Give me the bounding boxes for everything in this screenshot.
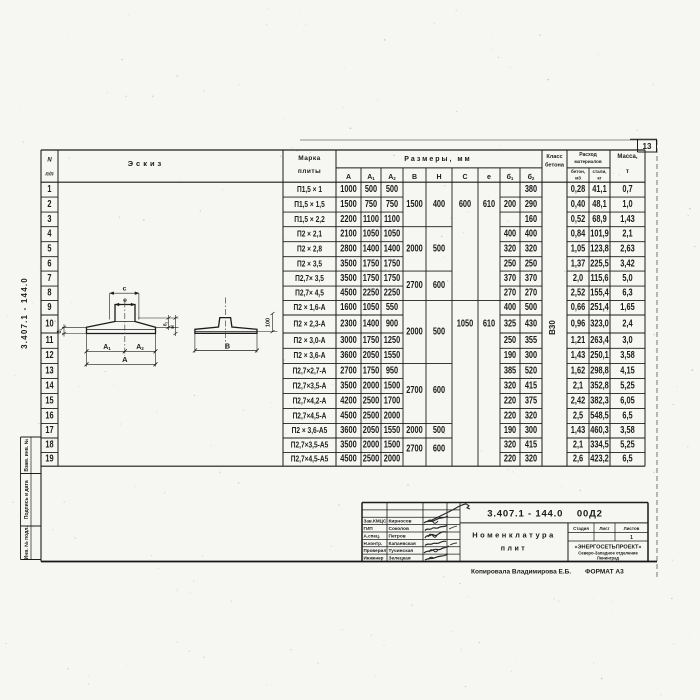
svg-text:с: с [123,286,127,293]
svg-text:1,65: 1,65 [620,301,634,312]
svg-text:1: 1 [47,183,51,194]
svg-text:3,42: 3,42 [620,257,634,268]
svg-text:А2: А2 [136,344,144,351]
svg-text:П2 × 3,0-А: П2 × 3,0-А [293,335,325,345]
svg-text:2: 2 [47,198,51,209]
svg-text:1,37: 1,37 [571,257,585,268]
svg-text:1,43: 1,43 [571,424,585,435]
svg-text:1050: 1050 [363,301,380,312]
svg-text:1: 1 [630,535,633,541]
svg-text:2000: 2000 [406,242,423,253]
svg-text:250: 250 [504,257,516,268]
svg-text:2,1: 2,1 [622,228,632,239]
svg-text:Взам. инв. №: Взам. инв. № [24,438,30,471]
svg-text:550: 550 [386,301,398,312]
svg-text:251,4: 251,4 [590,301,609,312]
svg-text:1750: 1750 [384,272,401,283]
svg-text:П2,7× 4,5: П2,7× 4,5 [295,288,324,298]
svg-text:1700: 1700 [384,394,401,405]
svg-text:3,58: 3,58 [620,349,634,360]
svg-text:т: т [626,169,629,175]
svg-text:263,4: 263,4 [590,334,609,345]
svg-text:1750: 1750 [363,257,380,268]
svg-text:375: 375 [525,394,537,405]
svg-text:3500: 3500 [340,272,357,283]
svg-text:380: 380 [525,183,537,194]
svg-text:Стадия: Стадия [573,526,589,531]
svg-text:600: 600 [433,442,445,453]
svg-text:400: 400 [525,228,537,239]
svg-text:2100: 2100 [340,228,357,239]
svg-text:415: 415 [525,379,537,390]
svg-text:В: В [225,343,230,350]
svg-text:2,1: 2,1 [573,439,583,450]
svg-text:250: 250 [525,257,537,268]
svg-text:270: 270 [504,287,516,298]
svg-text:290: 290 [525,198,537,209]
svg-text:Зелецкая: Зелецкая [389,556,411,562]
svg-text:Размеры, мм: Размеры, мм [404,156,471,163]
svg-text:бетон,: бетон, [571,168,585,174]
svg-text:325: 325 [504,317,516,328]
svg-text:4500: 4500 [340,409,357,420]
svg-text:3000: 3000 [340,334,357,345]
svg-text:0,84: 0,84 [571,228,585,239]
svg-text:п/п: п/п [45,172,54,178]
svg-text:370: 370 [525,272,537,283]
svg-text:41,1: 41,1 [592,183,606,194]
svg-text:2700: 2700 [406,384,423,395]
svg-text:2000: 2000 [406,325,423,336]
svg-text:П2 × 2,8: П2 × 2,8 [297,244,323,254]
svg-text:6,3: 6,3 [622,287,632,298]
svg-text:6,05: 6,05 [620,394,634,405]
svg-text:2700: 2700 [406,442,423,453]
svg-text:м3: м3 [575,176,581,181]
svg-text:300: 300 [525,349,537,360]
svg-text:1750: 1750 [363,364,380,375]
svg-text:2,63: 2,63 [620,243,634,254]
svg-text:2,1: 2,1 [573,379,583,390]
svg-text:5,25: 5,25 [620,439,634,450]
svg-text:Номенклатура: Номенклатура [472,531,556,540]
svg-text:П2,7×3,5-А5: П2,7×3,5-А5 [291,440,329,450]
svg-text:460,3: 460,3 [590,424,609,435]
svg-text:Проверил: Проверил [364,548,387,553]
svg-text:П2 × 1,6-А: П2 × 1,6-А [293,302,325,312]
svg-text:Листов: Листов [624,526,640,531]
svg-text:Подпись и дата: Подпись и дата [24,480,30,519]
svg-text:Капаевская: Капаевская [389,541,416,547]
svg-text:4: 4 [47,228,51,239]
svg-text:500: 500 [433,424,445,435]
svg-text:П2,7×2,7-А: П2,7×2,7-А [293,366,327,376]
svg-text:3600: 3600 [340,424,357,435]
svg-text:Расход: Расход [579,152,597,158]
svg-text:Инженер: Инженер [364,556,384,561]
svg-text:2000: 2000 [406,424,423,435]
svg-text:бетона: бетона [545,162,565,169]
svg-text:плит: плит [501,546,527,553]
svg-text:298,8: 298,8 [590,364,609,375]
svg-text:10: 10 [45,317,53,328]
svg-text:1400: 1400 [363,243,380,254]
svg-text:190: 190 [504,424,516,435]
svg-text:1100: 1100 [363,213,379,224]
svg-text:250: 250 [504,334,516,345]
svg-text:8: 8 [47,287,51,298]
svg-text:2500: 2500 [363,409,380,420]
svg-text:115,6: 115,6 [590,272,608,283]
svg-text:А: А [122,355,128,364]
svg-text:А1: А1 [103,344,111,351]
svg-text:320: 320 [525,409,537,420]
svg-text:1,43: 1,43 [571,349,585,360]
svg-text:А.спец.: А.спец. [364,533,381,538]
svg-text:2700: 2700 [406,279,423,290]
svg-text:1400: 1400 [384,243,401,254]
svg-text:П2,7×3,5-А: П2,7×3,5-А [293,381,327,391]
svg-text:Копировала Владимирова Е.Б.: Копировала Владимирова Е.Б. [471,569,571,576]
svg-text:2000: 2000 [384,409,401,420]
svg-text:3.407.1 - 144.0 00Д2: 3.407.1 - 144.0 00Д2 [487,509,603,520]
svg-text:9: 9 [47,301,51,312]
svg-text:48,1: 48,1 [592,198,606,209]
svg-text:950: 950 [386,364,398,375]
svg-text:750: 750 [386,198,398,209]
svg-text:В30: В30 [548,320,557,335]
svg-text:500: 500 [525,301,537,312]
svg-text:14: 14 [45,379,53,390]
svg-text:Соколов: Соколов [389,526,409,532]
svg-text:Н.контр.: Н.контр. [364,541,383,546]
svg-text:4500: 4500 [340,453,357,464]
svg-text:155,4: 155,4 [590,287,609,298]
svg-text:0,66: 0,66 [571,301,585,312]
svg-text:68,9: 68,9 [592,213,606,224]
svg-text:Кирносов: Кирносов [389,519,412,525]
svg-text:520: 520 [525,364,537,375]
svg-text:2000: 2000 [363,379,380,390]
svg-text:2,5: 2,5 [573,409,583,420]
svg-text:N: N [47,158,52,164]
svg-text:2,4: 2,4 [622,317,632,328]
svg-text:600: 600 [433,279,445,290]
svg-text:2200: 2200 [340,213,357,224]
svg-text:2500: 2500 [363,394,380,405]
svg-text:1750: 1750 [363,272,380,283]
svg-text:400: 400 [433,198,445,209]
svg-text:Эскиз: Эскиз [128,159,165,168]
svg-text:200: 200 [504,198,516,209]
svg-text:В: В [412,174,417,181]
svg-text:600: 600 [459,198,471,209]
svg-text:3,58: 3,58 [620,424,634,435]
svg-text:370: 370 [504,272,516,283]
svg-text:18: 18 [45,439,53,450]
svg-text:1,62: 1,62 [571,364,585,375]
svg-text:е: е [123,297,127,304]
svg-text:0,96: 0,96 [571,317,585,328]
svg-text:400: 400 [504,228,516,239]
svg-text:270: 270 [525,287,537,298]
svg-text:500: 500 [433,242,445,253]
svg-text:1250: 1250 [384,334,401,345]
svg-text:323,0: 323,0 [590,317,609,328]
svg-text:400: 400 [504,301,516,312]
svg-text:320: 320 [525,453,537,464]
svg-text:500: 500 [433,325,445,336]
svg-text:1050: 1050 [363,228,380,239]
svg-text:334,5: 334,5 [590,439,609,450]
svg-text:Н: Н [170,325,175,328]
svg-text:3600: 3600 [340,349,357,360]
svg-text:220: 220 [504,453,516,464]
svg-text:300: 300 [525,424,537,435]
svg-text:1600: 1600 [340,301,357,312]
svg-text:3,0: 3,0 [622,334,632,345]
svg-text:3.407.1 - 144.0: 3.407.1 - 144.0 [20,277,29,349]
svg-text:3500: 3500 [340,439,357,450]
svg-text:2250: 2250 [384,287,401,298]
svg-text:1500: 1500 [384,439,401,450]
svg-text:352,8: 352,8 [590,379,609,390]
svg-text:225,5: 225,5 [590,257,609,268]
svg-text:0,52: 0,52 [571,213,585,224]
svg-text:Инв. № подл.: Инв. № подл. [24,526,30,560]
svg-text:2,0: 2,0 [573,272,583,283]
svg-text:548,5: 548,5 [590,409,609,420]
svg-text:500: 500 [386,183,398,194]
svg-text:1,43: 1,43 [620,213,634,224]
svg-text:1500: 1500 [384,379,401,390]
svg-text:материалов: материалов [574,159,602,164]
svg-text:6,5: 6,5 [622,453,632,464]
svg-text:2,42: 2,42 [571,394,585,405]
svg-text:250,1: 250,1 [590,349,609,360]
svg-text:320: 320 [504,243,516,254]
svg-text:Ленинград: Ленинград [597,556,620,561]
svg-text:Н: Н [436,174,441,181]
svg-text:2050: 2050 [363,349,380,360]
svg-text:ГИП: ГИП [364,526,373,531]
svg-text:1550: 1550 [384,424,401,435]
svg-text:2250: 2250 [363,287,380,298]
svg-text:Класс: Класс [546,154,562,160]
svg-text:0,7: 0,7 [622,183,632,194]
svg-text:1500: 1500 [340,198,357,209]
svg-text:П2 × 2,3-А: П2 × 2,3-А [293,319,325,329]
svg-text:кг: кг [597,176,601,181]
svg-text:Масса,: Масса, [617,154,637,160]
svg-text:1000: 1000 [340,183,357,194]
svg-text:П1,5 × 2,2: П1,5 × 2,2 [294,214,325,224]
svg-text:423,2: 423,2 [590,453,609,464]
svg-text:220: 220 [504,409,516,420]
svg-text:П2 × 3,5: П2 × 3,5 [297,258,323,268]
svg-text:П1,5 × 1: П1,5 × 1 [297,184,323,194]
svg-text:2500: 2500 [363,453,380,464]
svg-text:Петров: Петров [389,533,406,539]
svg-text:4500: 4500 [340,287,357,298]
svg-text:123,8: 123,8 [590,243,609,254]
svg-text:1050: 1050 [384,228,401,239]
svg-text:7: 7 [47,272,51,283]
svg-text:2000: 2000 [384,453,401,464]
svg-text:11: 11 [46,334,54,345]
svg-text:6: 6 [47,257,51,268]
svg-text:16: 16 [45,409,53,420]
svg-text:2800: 2800 [340,243,357,254]
svg-text:1050: 1050 [457,317,474,328]
svg-text:4,15: 4,15 [620,364,634,375]
svg-text:610: 610 [483,317,495,328]
svg-text:220: 220 [504,394,516,405]
svg-text:П2,7×4,5-А: П2,7×4,5-А [293,410,327,420]
svg-text:2,6: 2,6 [573,453,583,464]
svg-text:500: 500 [365,183,377,194]
svg-text:13: 13 [45,364,53,375]
svg-text:320: 320 [504,379,516,390]
svg-text:А: А [346,174,351,181]
svg-text:П2,7×4,5-А5: П2,7×4,5-А5 [291,454,329,464]
svg-text:1100: 1100 [384,213,400,224]
svg-text:1550: 1550 [384,349,401,360]
svg-text:1750: 1750 [384,257,401,268]
svg-text:415: 415 [525,439,537,450]
svg-text:0,28: 0,28 [571,183,585,194]
svg-text:382,3: 382,3 [590,394,609,405]
svg-text:А1: А1 [367,174,375,181]
svg-text:430: 430 [525,317,537,328]
svg-text:160: 160 [525,213,537,224]
svg-text:А2: А2 [388,174,396,181]
svg-text:3500: 3500 [340,257,357,268]
svg-text:101,9: 101,9 [590,228,609,239]
svg-text:900: 900 [386,317,398,328]
svg-text:3500: 3500 [340,379,357,390]
svg-text:1500: 1500 [406,198,423,209]
svg-text:П2 × 2,1: П2 × 2,1 [297,229,323,239]
svg-text:385: 385 [504,364,516,375]
svg-text:1,05: 1,05 [571,243,585,254]
svg-text:е: е [487,174,491,181]
svg-text:100: 100 [265,318,271,327]
svg-text:1750: 1750 [363,334,380,345]
svg-text:355: 355 [525,334,537,345]
svg-text:2300: 2300 [340,317,357,328]
svg-text:320: 320 [525,243,537,254]
svg-text:2,52: 2,52 [571,287,585,298]
svg-text:С: С [462,174,467,181]
svg-text:5: 5 [47,243,51,254]
svg-text:П2,7× 3,5: П2,7× 3,5 [295,273,324,283]
svg-text:750: 750 [365,198,377,209]
svg-text:19: 19 [45,453,53,464]
svg-text:2000: 2000 [363,439,380,450]
svg-text:П2 × 3,6-А: П2 × 3,6-А [293,350,325,360]
svg-text:320: 320 [504,439,516,450]
svg-text:4200: 4200 [340,394,357,405]
svg-text:2050: 2050 [363,424,380,435]
svg-text:ФОРМАТ А3: ФОРМАТ А3 [585,569,624,576]
svg-text:17: 17 [45,424,53,435]
svg-text:600: 600 [433,384,445,395]
svg-text:6,5: 6,5 [622,409,632,420]
svg-text:15: 15 [45,394,53,405]
svg-text:2700: 2700 [340,364,357,375]
svg-text:1400: 1400 [363,317,380,328]
svg-text:П1,5 × 1,5: П1,5 × 1,5 [294,199,325,209]
svg-text:Лист: Лист [599,526,610,531]
svg-text:610: 610 [483,198,495,209]
svg-text:1,21: 1,21 [571,334,585,345]
svg-text:Тучинская: Тучинская [389,548,414,554]
svg-text:П2 × 3,6-А5: П2 × 3,6-А5 [292,425,328,435]
svg-text:3: 3 [47,213,51,224]
svg-text:5,25: 5,25 [620,379,634,390]
svg-text:0,40: 0,40 [571,198,585,209]
svg-text:1,0: 1,0 [622,198,632,209]
svg-text:Марка: Марка [298,155,320,162]
svg-text:П2,7×4,2-А: П2,7×4,2-А [293,396,327,406]
svg-text:12: 12 [45,349,53,360]
svg-text:Зав.КМЦС: Зав.КМЦС [364,519,388,524]
svg-text:стали,: стали, [592,169,606,174]
svg-text:плиты: плиты [298,168,321,175]
svg-text:190: 190 [504,349,516,360]
svg-text:5,0: 5,0 [622,272,632,283]
